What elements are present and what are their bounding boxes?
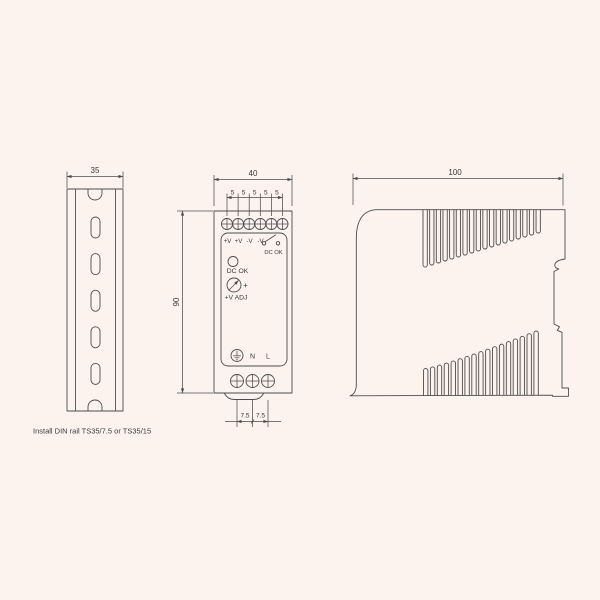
line-label: L [266,354,270,361]
relay-contact-label: DC OK [264,250,282,256]
potentiometer-arrow [229,281,239,291]
rail-slot [91,327,100,348]
rail-slot [91,290,100,311]
vent-fin [430,367,434,395]
vent-fin [423,210,427,267]
vent-fin [483,210,487,249]
depth-dimension: 100 [353,168,563,206]
vent-fin [450,210,454,259]
vent-fin [470,210,474,253]
din-rail-view: 35 Install DIN rail TS35/7.5 or TS35/15 [33,166,151,436]
vent-fin [534,331,538,395]
output-terminal-screws [222,219,289,230]
earth-ground-icon [231,350,243,362]
led-label: DC OK [227,268,249,275]
input-pitch-label: 7.5 [240,413,249,420]
width-dimension: 40 [214,169,292,206]
install-caption: Install DIN rail TS35/7.5 or TS35/15 [33,427,151,436]
terminal-label: +V [224,238,233,245]
pitch-ticks [227,194,283,217]
adjust-label: +V ADJ [225,295,248,302]
rail-mounting-slots [91,217,100,384]
vent-fin [463,210,467,255]
din-clip-slider [225,394,264,400]
vent-fin [451,361,455,395]
pitch-dim-label: 5 [231,190,235,197]
input-pitch-dimension: 7.5 7.5 [225,400,281,427]
front-view: 90 40 5 5 5 5 5 +V +V -V -V [172,169,292,427]
rail-width-dimension: 35 [67,166,123,188]
vent-fin [436,210,440,263]
contact-point [276,242,279,245]
adjust-plus-sign: + [243,281,248,290]
vent-fin [486,349,490,395]
vent-fin [493,347,497,395]
rail-bottom-notch [88,400,102,411]
pitch-dim-label: 5 [253,190,257,197]
pitch-dim-label: 5 [264,190,268,197]
contact-lever [266,235,276,242]
vent-fin [490,210,494,247]
side-case-outline [350,210,569,397]
vent-fin [520,336,524,395]
vent-fin [527,334,531,395]
dc-ok-relay-contact-icon [262,235,279,245]
vent-fin [443,210,447,261]
technical-drawing-canvas: 35 Install DIN rail TS35/7.5 or TS35/15 … [0,0,600,600]
vent-fin [456,210,460,257]
pitch-dim-label: 5 [242,190,246,197]
input-terminal-screws [231,375,275,388]
side-view: 100 [350,168,569,396]
vent-fin [458,359,462,395]
terminal-pitch-dimension: 5 5 5 5 5 [227,190,283,217]
rail-slot [91,254,100,275]
rail-top-notch [88,189,102,200]
pitch-dim-label: 5 [275,190,279,197]
vent-fin [444,363,448,395]
input-pitch-label: 7.5 [256,413,265,420]
vent-fin [529,210,533,235]
vent-fin [424,369,428,395]
dc-ok-led-icon [228,257,238,267]
vent-fin [506,342,510,395]
neutral-label: N [250,354,255,361]
vent-fin [437,365,441,395]
vent-fin [513,339,517,395]
vent-fin [509,210,513,241]
vent-fin [503,210,507,243]
terminal-label: -V [246,238,253,245]
vent-fin [499,344,503,395]
depth-dim-label: 100 [448,168,462,177]
vent-fin [496,210,500,245]
vent-fin [479,352,483,395]
vent-fin [472,354,476,395]
vent-fin [536,210,540,233]
top-vent-slots [423,210,540,267]
vent-fin [476,210,480,251]
width-dim-label: 40 [249,169,258,178]
v-adj-potentiometer-icon [227,278,241,292]
vent-fin [465,356,469,395]
height-dimension: 90 [172,211,213,393]
vent-fin [516,210,520,239]
rail-slot [91,217,100,238]
vent-fin [430,210,434,265]
vent-fin [523,210,527,237]
bottom-vent-slots [424,331,539,395]
rail-width-dim-label: 35 [91,166,100,175]
rail-slot [91,363,100,384]
height-dim-label: 90 [172,297,181,306]
terminal-label: +V [235,238,244,245]
